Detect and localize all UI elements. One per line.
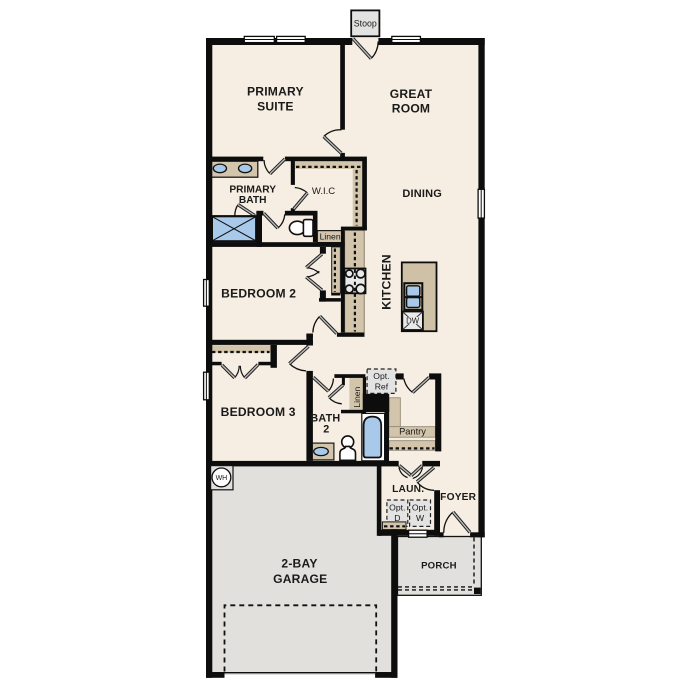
svg-text:Opt.: Opt. [373,371,389,381]
svg-text:KITCHEN: KITCHEN [380,254,394,310]
svg-text:GARAGE: GARAGE [273,572,327,586]
svg-text:W.I.C: W.I.C [312,186,335,197]
svg-text:LAUN.: LAUN. [392,484,424,495]
svg-text:PRIMARY: PRIMARY [247,85,304,99]
svg-text:WH: WH [216,475,228,482]
svg-text:2: 2 [323,424,329,436]
svg-text:PRIMARY: PRIMARY [229,184,276,195]
svg-text:Ref: Ref [375,381,389,391]
svg-text:BATH: BATH [310,412,340,424]
svg-text:ROOM: ROOM [392,102,430,116]
svg-text:BATH: BATH [239,195,267,206]
svg-text:PORCH: PORCH [421,560,457,571]
svg-text:Linen: Linen [352,386,362,407]
svg-text:D: D [394,513,400,523]
svg-text:BEDROOM 2: BEDROOM 2 [221,287,296,301]
svg-text:W: W [416,513,425,523]
svg-text:Opt.: Opt. [389,502,405,512]
svg-text:Opt.: Opt. [412,502,428,512]
svg-text:SUITE: SUITE [257,99,294,113]
svg-text:DW: DW [406,317,420,326]
svg-text:2-BAY: 2-BAY [281,556,317,570]
svg-text:Stoop: Stoop [354,19,377,29]
svg-text:Pantry: Pantry [399,427,426,437]
svg-text:DINING: DINING [402,188,442,200]
svg-text:GREAT: GREAT [390,87,433,101]
svg-text:FOYER: FOYER [440,492,477,503]
svg-text:BEDROOM 3: BEDROOM 3 [221,405,296,419]
svg-text:Linen: Linen [320,232,341,242]
